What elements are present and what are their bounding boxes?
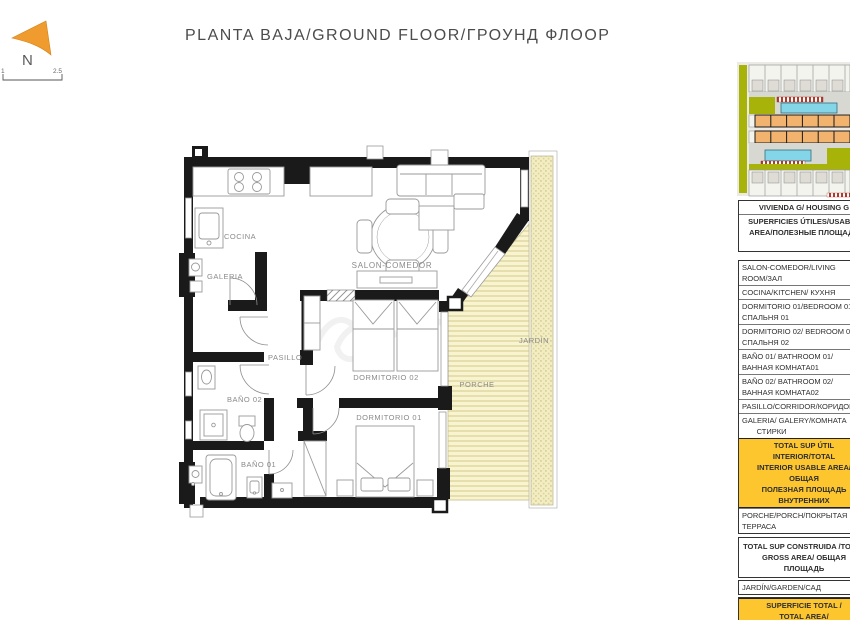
room-label-bano2: BAÑO 02: [227, 395, 262, 404]
washing-machine-icon: [189, 259, 202, 292]
room-label-galeria: GALERIA: [207, 272, 243, 281]
room-label-jardin: JARDÍN: [519, 336, 549, 345]
table-row-salon: SALON-COMEDOR/LIVING ROOM/ЗАЛ: [739, 261, 850, 285]
wardrobe-d2: [304, 296, 320, 350]
sink-b2: [198, 366, 215, 389]
room-label-dormitorio1: DORMITORIO 01: [356, 413, 422, 422]
table-row-cocina: COCINA/KITCHEN/ КУХНЯ: [739, 285, 850, 299]
tv-cabinet: [357, 271, 437, 288]
stove-icon: [228, 169, 270, 194]
bed-single-2: [397, 300, 438, 371]
toilet-b1: [247, 477, 262, 498]
svg-text:1: 1: [1, 68, 5, 75]
total-area-row: SUPERFICIE TOTAL / TOTAL AREA/ ОБЩАЯ ПЛО…: [739, 598, 850, 620]
garden-area: [529, 151, 557, 508]
floor-plan: N 1 2.5: [0, 0, 850, 620]
shower-b2: [200, 410, 227, 440]
table-row-bano1: BAÑO 01/ BATHROOM 01/ ВАННАЯ КОМНАТА01: [739, 349, 850, 374]
garden-row: JARDÍN/GARDEN/САД: [739, 581, 850, 594]
table-row-dormitorio2: DORMITORIO 02/ BEDROOM 02/ СПАЛЬНЯ 02: [739, 324, 850, 349]
north-arrow-icon: N: [12, 21, 51, 69]
room-label-cocina: COCINA: [224, 232, 256, 241]
room-label-dormitorio2: DORMITORIO 02: [353, 373, 419, 382]
total-interior-row: TOTAL SUP ÚTIL INTERIOR/TOTAL INTERIOR U…: [739, 438, 850, 508]
svg-text:2.5: 2.5: [53, 68, 62, 75]
coffee-table: [419, 206, 454, 230]
table-header-block: VIVIENDA G/ HOUSING G SUPERFICIES ÚTILES…: [738, 200, 850, 252]
table-row-dormitorio1: DORMITORIO 01/BEDROOM 01/ СПАЛЬНЯ 01: [739, 299, 850, 324]
table-subheader: SUPERFICIES ÚTILES/USABLE AREA/ПОЛЕЗНЫЕ …: [739, 214, 850, 251]
porch-row: PORCHE/PORCH/ПОКРЫТАЯ ТЕРРАСА: [739, 508, 850, 533]
room-label-bano1: BAÑO 01: [241, 460, 276, 469]
bathtub-icon: [206, 455, 236, 500]
table-rows-block: SALON-COMEDOR/LIVING ROOM/ЗАЛ COCINA/KIT…: [738, 260, 850, 534]
nightstand-left: [337, 480, 353, 496]
north-label: N: [22, 52, 33, 69]
room-label-pasillo: PASILLO: [268, 353, 302, 362]
room-label-salon: SALON-COMEDOR: [352, 261, 433, 270]
site-plan-thumbnail: [737, 62, 850, 197]
sink-b1: [272, 483, 292, 498]
table-row-pasillo: PASILLO/CORRIDOR/КОРИДОР: [739, 399, 850, 413]
bed-single-1: [353, 300, 394, 371]
table-row-bano2: BAÑO 02/ BATHROOM 02/ ВАННАЯ КОМНАТА02: [739, 374, 850, 399]
room-label-porche: PORCHE: [459, 380, 494, 389]
water-heater-icon: [189, 466, 202, 486]
area-table: VIVIENDA G/ HOUSING G SUPERFICIES ÚTILES…: [738, 200, 850, 620]
table-header: VIVIENDA G/ HOUSING G: [739, 201, 850, 214]
wardrobe-d1: [304, 441, 326, 496]
total-built-row: TOTAL SUP CONSTRUIDA /TOTAL GROSS AREA/ …: [739, 538, 850, 577]
toilet-b2: [239, 416, 255, 442]
wall-section-hatch: [327, 290, 355, 301]
nightstand-right: [417, 480, 433, 496]
scale-bar: 1 2.5: [1, 68, 62, 80]
bed-double: [356, 426, 414, 497]
kitchen-counter: [193, 167, 372, 196]
table-row-galeria: GALERIA/ GALERY/КОМНАТА СТИРКИ: [739, 413, 850, 438]
kitchen-sink-icon: [195, 208, 223, 248]
